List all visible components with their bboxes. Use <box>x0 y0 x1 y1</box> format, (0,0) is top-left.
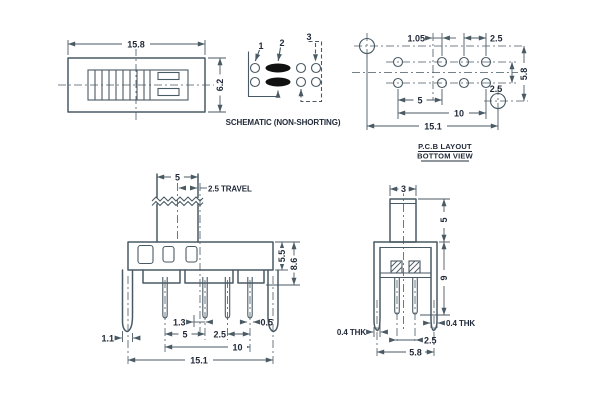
schematic-caption: SCHEMATIC (NON-SHORTING) <box>226 118 341 127</box>
dim-pcb-pitch-10-label: 10 <box>454 109 464 119</box>
dim-pcb-pitch-5-label: 5 <box>417 96 422 106</box>
dim-front-leg-width: 1.1 <box>101 331 139 344</box>
pcb-title-line1: P.C.B LAYOUT <box>418 142 472 151</box>
pcb-title-line2: BOTTOM VIEW <box>417 152 474 161</box>
pcb-centerlines <box>352 33 528 113</box>
dim-front-pin-offset-label: 1.3 <box>173 318 186 328</box>
dim-front-travel: 2.5 TRAVEL <box>179 185 252 194</box>
dim-side-knob-height-label: 5 <box>439 217 449 222</box>
dim-front-pitch-5: 5 <box>165 329 205 340</box>
front-body-outline <box>128 242 273 270</box>
dim-side-overall-label: 5.8 <box>409 348 422 358</box>
dim-pcb-pitch-10: 10 <box>398 108 486 119</box>
schematic-pos1-label: 1 <box>258 41 263 51</box>
dim-front-overall: 15.1 <box>128 355 273 366</box>
front-view: 5 2.5 TRAVEL 5.5 8.6 1.3 <box>101 172 300 366</box>
dim-pcb-pitch-right-label: 2.5 <box>490 34 503 44</box>
schematic-common-contact-1 <box>266 64 291 73</box>
side-knob <box>390 199 416 242</box>
top-view-contact-slot-1 <box>158 73 179 80</box>
dim-front-body-height-label: 8.6 <box>289 258 299 271</box>
dim-top-height: 6.2 <box>208 58 226 112</box>
front-body-windows <box>138 246 197 264</box>
pcb-layout-view: 1.05 2.5 2.5 5.8 5 10 15.1 <box>352 33 530 161</box>
front-body-bumps <box>143 270 264 283</box>
dim-top-height-label: 6.2 <box>215 79 225 92</box>
dim-front-pin-width-label: 0.5 <box>261 318 274 328</box>
dim-top-width-label: 15.8 <box>127 40 145 50</box>
front-leg-left <box>123 270 133 332</box>
dim-pcb-pitch-5: 5 <box>398 95 442 106</box>
dim-front-pitch-2-5: 2.5 <box>213 330 250 340</box>
dim-pcb-hole-height: 5.8 <box>518 46 530 101</box>
schematic-pos3-label: 3 <box>306 32 311 42</box>
dim-front-leg-width-label: 1.1 <box>101 334 114 344</box>
slide-switch-drawing: 15.8 6.2 1 2 3 SCHEMATIC (NON-SHORTING) <box>0 0 600 400</box>
dim-top-width: 15.8 <box>68 39 205 56</box>
dim-pcb-overall: 15.1 <box>367 121 498 132</box>
top-view: 15.8 6.2 <box>58 39 226 123</box>
side-body <box>374 242 437 331</box>
dim-side-pin-pitch-label: 2.5 <box>424 336 437 346</box>
dim-side-overall: 5.8 <box>377 347 434 358</box>
dim-front-knob-width: 5 <box>157 172 198 183</box>
dim-pcb-offset-label: 1.05 <box>407 34 425 44</box>
pcb-extension-lines <box>367 33 498 130</box>
dim-side-knob-width: 3 <box>390 184 416 196</box>
side-view: 3 5 9 0.4 THK 0.4 THK <box>337 184 476 358</box>
dim-front-pin-width: 0.5 <box>241 318 273 328</box>
dim-pcb-hole-height-label: 5.8 <box>519 68 529 81</box>
pcb-title: P.C.B LAYOUT BOTTOM VIEW <box>417 142 474 161</box>
dim-front-pitch-10: 10 <box>165 342 250 353</box>
dim-front-upper-height-label: 5.5 <box>277 250 287 263</box>
schematic-pos2-label: 2 <box>279 38 284 48</box>
dim-front-overall-label: 15.1 <box>190 356 208 366</box>
side-pins <box>395 278 418 314</box>
engineering-drawing-page: 15.8 6.2 1 2 3 SCHEMATIC (NON-SHORTING) <box>0 0 600 400</box>
schematic-common-contact-2 <box>266 78 291 87</box>
dim-pcb-pitch-right: 2.5 <box>464 34 503 44</box>
schematic-view: 1 2 3 SCHEMATIC (NON-SHORTING) <box>226 32 341 127</box>
top-view-contact-slot-2 <box>158 89 179 96</box>
dim-pcb-overall-label: 15.1 <box>424 122 442 132</box>
dim-side-knob-height: 5 <box>418 199 450 242</box>
dim-side-body-height-label: 9 <box>439 275 449 280</box>
dim-front-pitch-10-label: 10 <box>232 343 242 353</box>
dim-pcb-row-gap: 2.5 <box>490 62 512 94</box>
side-centerlines <box>377 188 434 356</box>
dim-front-pitch-5-label: 5 <box>182 330 187 340</box>
front-centerlines <box>128 183 273 364</box>
dim-front-knob-width-label: 5 <box>175 173 180 183</box>
dim-front-pitch-2-5-label: 2.5 <box>213 330 226 340</box>
dim-side-thk-right-label: 0.4 THK <box>446 319 475 328</box>
dim-front-travel-label: 2.5 TRAVEL <box>208 185 252 194</box>
dim-side-body-height: 9 <box>420 242 450 315</box>
dim-side-knob-width-label: 3 <box>401 184 406 194</box>
dim-pcb-row-gap-label: 2.5 <box>490 84 503 94</box>
dim-side-thk-left-label: 0.4 THK <box>337 328 366 337</box>
dim-pcb-offset: 1.05 <box>407 34 456 44</box>
side-contact-blocks <box>391 261 420 273</box>
